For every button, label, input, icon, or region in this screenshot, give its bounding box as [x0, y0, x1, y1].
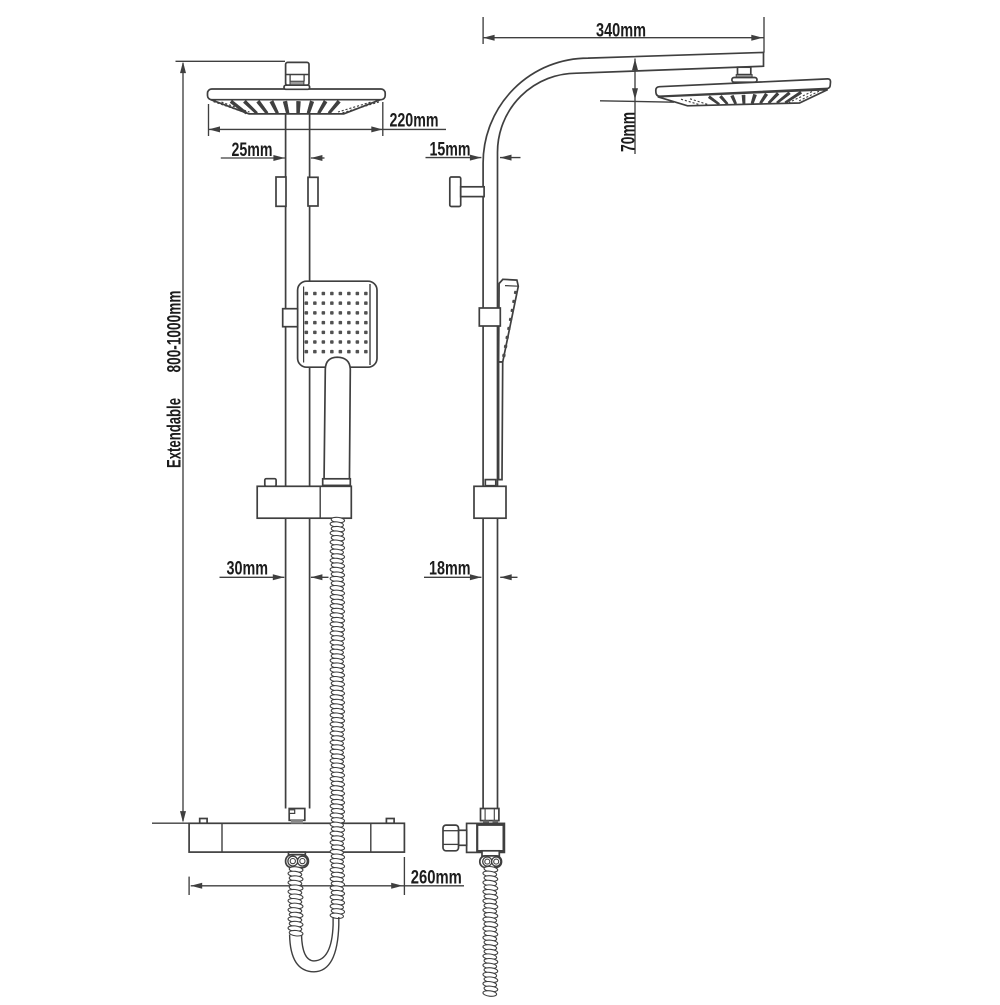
svg-text:18mm: 18mm: [429, 557, 471, 579]
svg-text:25mm: 25mm: [232, 139, 273, 161]
svg-text:70mm: 70mm: [617, 112, 639, 152]
svg-text:340mm: 340mm: [596, 19, 646, 41]
svg-text:15mm: 15mm: [430, 139, 471, 161]
svg-text:800-1000mm: 800-1000mm: [164, 291, 186, 373]
svg-text:260mm: 260mm: [411, 867, 462, 889]
svg-text:Extendable: Extendable: [164, 398, 186, 468]
svg-text:30mm: 30mm: [227, 557, 269, 579]
svg-text:220mm: 220mm: [390, 109, 439, 131]
